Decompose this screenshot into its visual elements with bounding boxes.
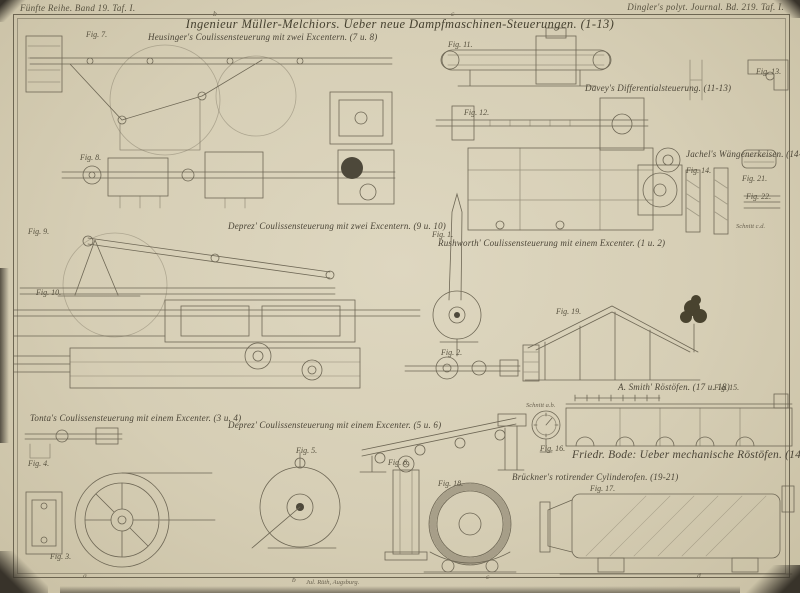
fig-label-14: Fig. 14.: [686, 167, 711, 175]
fig-label-1: Fig. 1.: [432, 231, 453, 239]
border-marker-top-b: b: [213, 10, 217, 18]
caption-deprez-zwei: Deprez' Coulissensteuerung mit zwei Exce…: [228, 222, 446, 231]
fig1-rushworth-illustration: [433, 194, 481, 356]
fig-label-18: Fig. 18.: [438, 480, 463, 488]
header-right: Dingler's polyt. Journal. Bd. 219. Taf. …: [627, 3, 784, 12]
caption-rushworth: Rushworth' Coulissensteuerung mit einem …: [438, 239, 665, 248]
fig5-deprez-illustration: [252, 452, 340, 548]
fig12-davey-illustration: [436, 98, 648, 150]
fig-label-22: Fig. 22.: [746, 193, 771, 201]
border-marker-bottom-a: a: [83, 572, 87, 580]
caption-deprez-einem: Deprez' Coulissensteuerung mit einem Exc…: [228, 421, 441, 430]
fig-label-11: Fig. 11.: [448, 41, 473, 49]
caption-tonta: Tonta's Coulissensteuerung mit einem Exc…: [30, 414, 241, 423]
schnitt-cd-label: Schnitt c.d.: [736, 224, 765, 231]
fig-label-21: Fig. 21.: [742, 175, 767, 183]
fig-label-15: Fig. 15.: [714, 384, 739, 392]
border-marker-bottom-b: b: [292, 576, 296, 584]
caption-heusinger: Heusinger's Coulissensteuerung mit zwei …: [148, 33, 377, 42]
fig-label-5: Fig. 5.: [296, 447, 317, 455]
border-marker-bottom-c: c: [486, 573, 489, 581]
fig9-deprez-illustration: [20, 233, 335, 337]
fig11-davey-illustration: [441, 28, 611, 86]
fig19-roof-truss-illustration: [523, 295, 707, 381]
plate-page: Fünfte Reihe. Band 19. Taf. I. Dingler's…: [0, 0, 800, 593]
fig-label-6: Fig. 6.: [388, 459, 409, 467]
fig10-deprez-illustration: [14, 300, 420, 388]
fig2-rushworth-illustration: [405, 357, 520, 379]
header-left: Fünfte Reihe. Band 19. Taf. I.: [20, 4, 135, 13]
plate-title: Ingenieur Müller-Melchiors. Ueber neue D…: [0, 18, 800, 31]
border-marker-top-c: c: [451, 10, 454, 18]
fig6-column-illustration: [385, 456, 427, 560]
caption-davey: Davey's Differentialsteuerung. (11-13): [585, 84, 731, 93]
fig-label-3: Fig. 3.: [50, 553, 71, 561]
tree-icon: [680, 295, 707, 323]
caption-brueckner: Brückner's rotirender Cylinderofen. (19-…: [512, 473, 679, 482]
caption-jachel: Jachel's Wängenerkeisen. (14-16): [686, 150, 800, 159]
fig-label-12: Fig. 12.: [464, 109, 489, 117]
fig-label-8: Fig. 8.: [80, 154, 101, 162]
fig7-heusinger-illustration: [26, 36, 392, 155]
schnitt-ab-label: Schnitt a.b.: [526, 403, 555, 410]
fig-label-9: Fig. 9.: [28, 228, 49, 236]
fig-label-7: Fig. 7.: [86, 31, 107, 39]
fig-label-17: Fig. 17.: [590, 485, 615, 493]
fig17-rotary-cylinder-illustration: [540, 486, 794, 574]
fig4-tonta-illustration: [25, 428, 122, 458]
fig-label-2: Fig. 2.: [441, 349, 462, 357]
fig-label-10: Fig. 10.: [36, 289, 61, 297]
smith-furnace-illustration: [566, 394, 792, 446]
fig13-davey-frame-illustration: [468, 148, 682, 230]
border-marker-bottom-d: d: [697, 572, 701, 580]
fig-label-4: Fig. 4.: [28, 460, 49, 468]
caption-bode: Friedr. Bode: Ueber mechanische Röstöfen…: [572, 450, 800, 462]
fig-label-13: Fig. 13.: [756, 68, 781, 76]
fig8-heusinger-illustration: [62, 150, 395, 208]
fig-label-16: Fig. 16.: [540, 445, 565, 453]
fig18-drum-end-illustration: [424, 483, 516, 572]
printer-mark: Jul. Rüth, Augsburg.: [306, 580, 359, 587]
fig-label-19: Fig. 19.: [556, 308, 581, 316]
